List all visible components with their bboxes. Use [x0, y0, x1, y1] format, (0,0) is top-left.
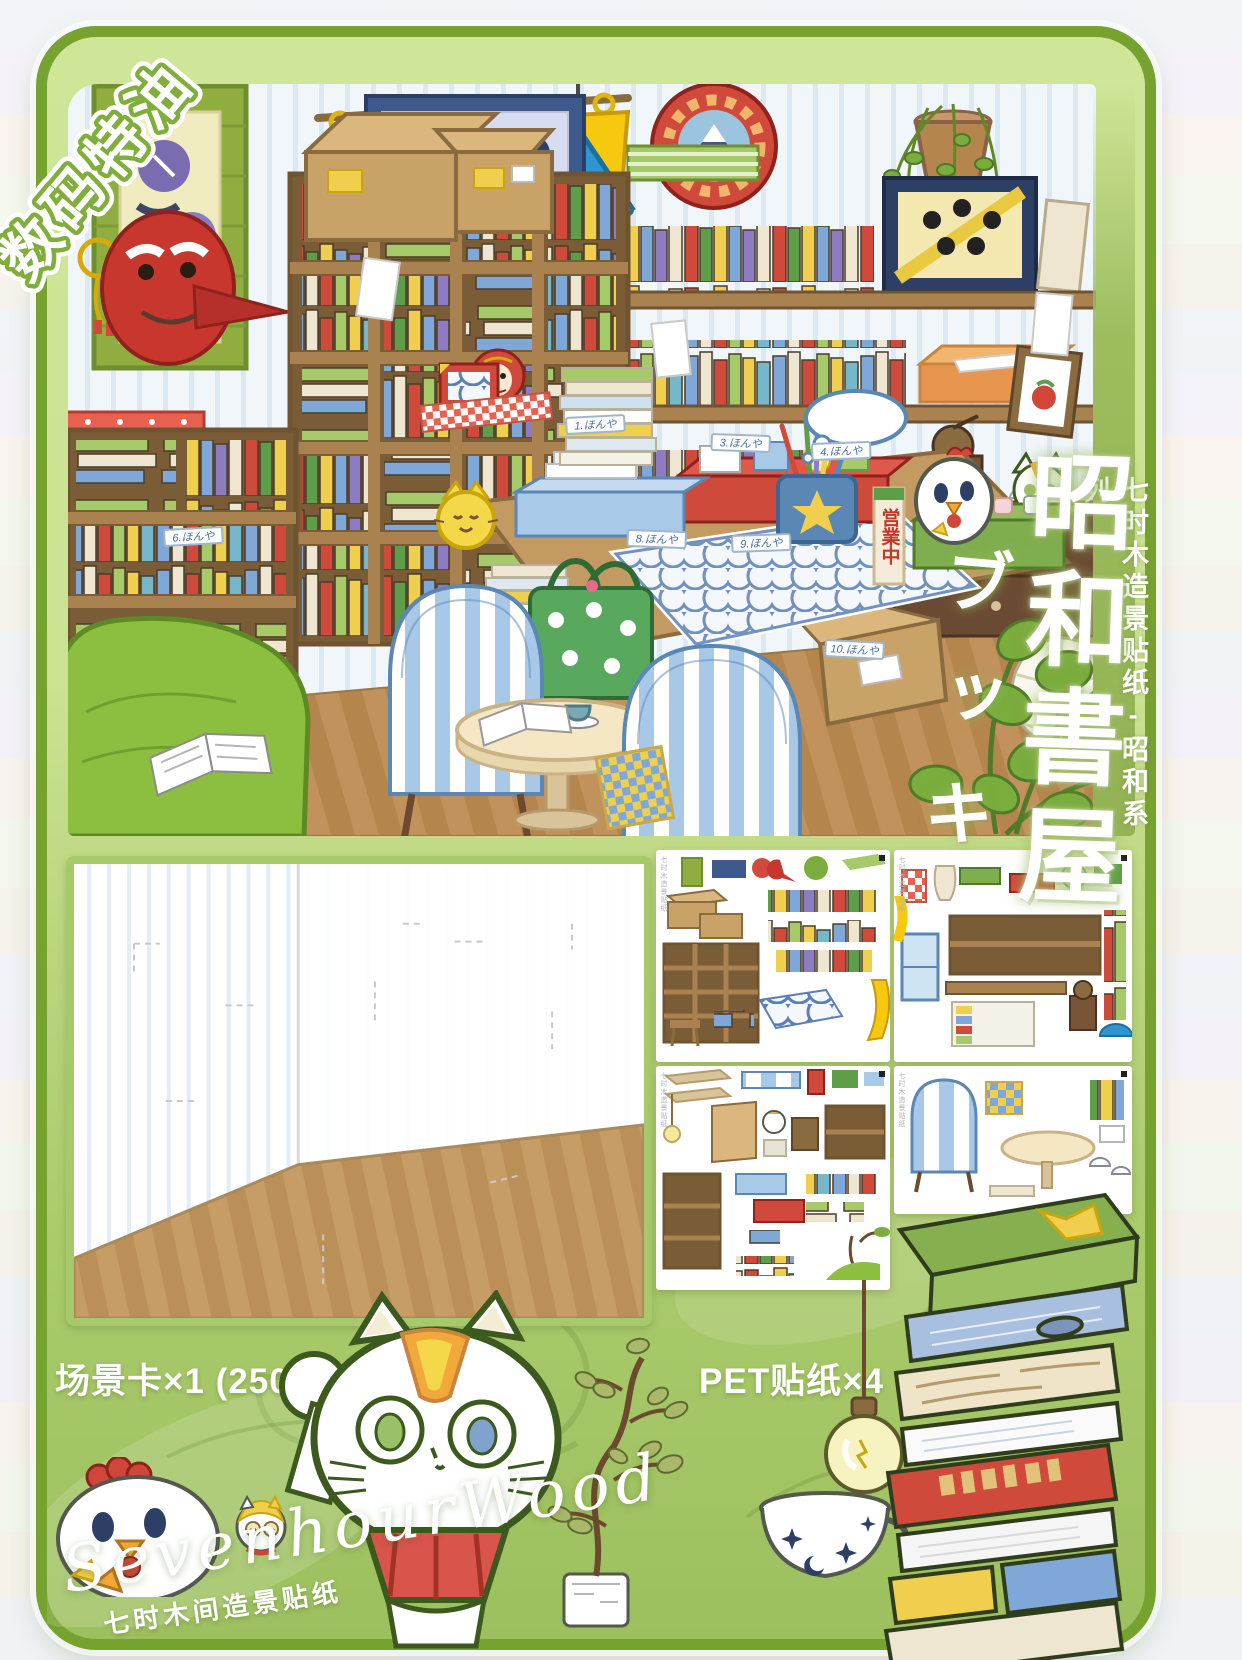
checkered-cushion [596, 747, 674, 829]
registration-mark [879, 1071, 885, 1077]
shelf-tag: 4.ほんや [812, 442, 871, 460]
shelf-tag: 8.ほんや [627, 530, 686, 548]
svg-text:8.ほんや: 8.ほんや [635, 533, 679, 546]
sticker-sheet-1: 七时木造景贴纸 [656, 850, 890, 1062]
chicken-mascot-title [913, 445, 995, 545]
shelf-tag: 9.ほんや [732, 534, 791, 552]
sticker-sheet-3: 七时木造景贴纸 [656, 1066, 890, 1290]
product-poster: 営業中 [0, 0, 1242, 1660]
ribbon-text: 数码特油 [0, 48, 208, 292]
open-sign-text: 営業中 [879, 507, 902, 566]
strawberry-frame [1008, 346, 1082, 437]
svg-text:6.ほんや: 6.ほんや [172, 530, 216, 544]
cardboard-boxes [306, 114, 552, 240]
sheet-edge-label: 七时木造景贴纸 [896, 1072, 906, 1128]
open-sign-banner: 営業中 [874, 488, 904, 584]
green-sofa [68, 618, 308, 836]
registration-mark [879, 855, 885, 861]
svg-text:9.ほんや: 9.ほんや [740, 537, 784, 550]
registration-mark [1121, 855, 1127, 861]
corner-ribbon: 数码特油 数码特油 [0, 22, 300, 342]
leaning-book [1038, 200, 1089, 292]
svg-text:3.ほんや: 3.ほんや [719, 437, 763, 450]
sheet-edge-label: 七时木造景贴纸 [658, 856, 668, 912]
shelf-tag: 6.ほんや [164, 527, 223, 546]
registration-mark [1121, 1071, 1127, 1077]
book-stack-deco [870, 1175, 1160, 1660]
shelf-tag: 10.ほんや [825, 640, 884, 659]
floral-art-frame [884, 178, 1036, 292]
shelf-tag: 3.ほんや [711, 434, 770, 452]
shelf-tag: 1.ほんや [566, 415, 625, 434]
sheet-edge-label: 七时木造景贴纸 [658, 1072, 668, 1128]
scene-card-preview [66, 856, 652, 1326]
svg-text:4.ほんや: 4.ほんや [820, 445, 864, 458]
svg-text:1.ほんや: 1.ほんや [574, 418, 618, 432]
